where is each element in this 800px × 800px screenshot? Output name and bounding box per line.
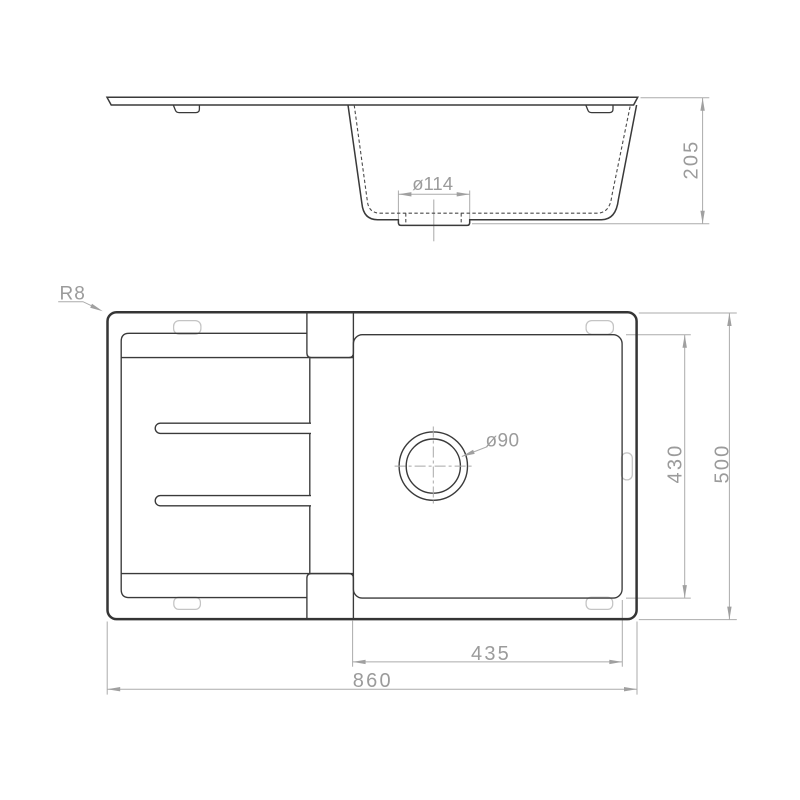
svg-text:ø114: ø114 bbox=[412, 173, 453, 194]
svg-text:435: 435 bbox=[471, 643, 511, 665]
svg-text:205: 205 bbox=[681, 140, 703, 180]
svg-text:430: 430 bbox=[665, 444, 687, 484]
svg-text:ø90: ø90 bbox=[486, 431, 520, 452]
svg-text:860: 860 bbox=[353, 670, 393, 692]
svg-text:500: 500 bbox=[712, 444, 734, 484]
